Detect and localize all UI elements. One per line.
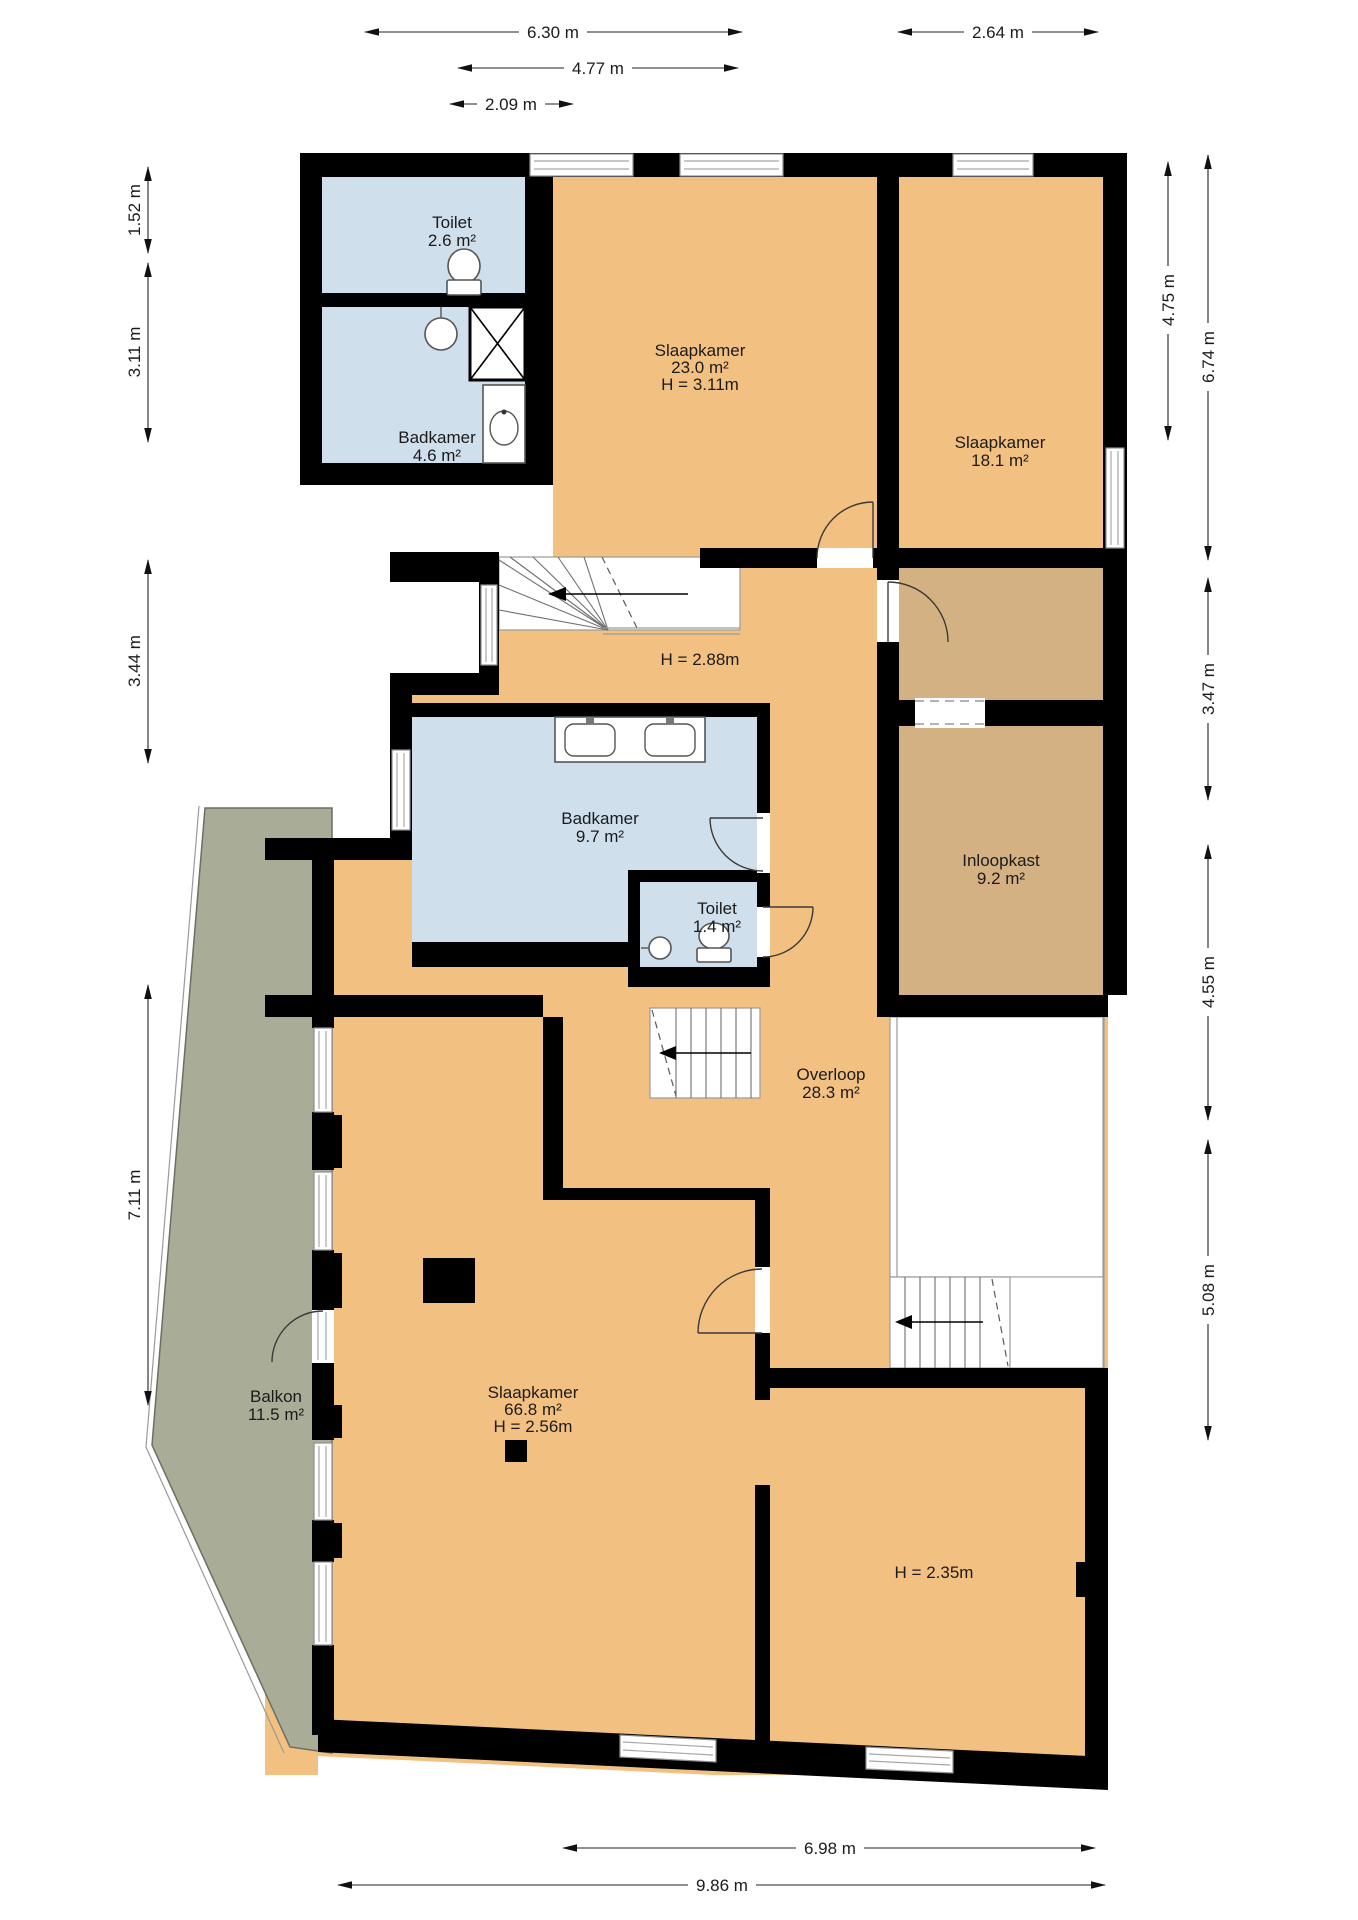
wall-toilet-badkamer — [322, 293, 525, 307]
wall-overloop-bottom — [755, 1368, 1108, 1388]
window-icon — [680, 154, 783, 176]
wall-668-right-upper — [543, 1017, 563, 1190]
room-fill-strip — [334, 860, 414, 1000]
room-label-area: 2.6 m² — [428, 231, 477, 250]
wall-corridor-left-b — [757, 873, 770, 907]
room-label-name: Badkamer — [561, 809, 639, 828]
wall-pier-4 — [312, 1523, 342, 1558]
dim-label: 4.75 m — [1159, 274, 1178, 326]
wall-18-bottom — [899, 548, 1103, 568]
shaft-icon — [470, 307, 525, 380]
wall-corridor-left-a — [757, 703, 770, 813]
dim-label: 3.47 m — [1199, 663, 1218, 715]
wall-wetrooms-bottom — [300, 463, 553, 485]
dim-label: 1.52 m — [125, 184, 144, 236]
wall-668-left-1 — [312, 860, 334, 1028]
wall-stub — [755, 1388, 770, 1400]
window-icon — [392, 750, 410, 830]
dim-label: 6.30 m — [527, 23, 579, 42]
wall-pier-3 — [312, 1405, 342, 1438]
wall-toilet14-bottom — [628, 967, 770, 987]
room-label-name: Slaapkamer — [955, 433, 1046, 452]
staircase-top-icon — [499, 557, 740, 634]
wall-closet-b — [985, 700, 1103, 726]
room-label-area: 28.3 m² — [802, 1083, 860, 1102]
window-icon — [530, 154, 633, 176]
window-icon — [314, 1028, 332, 1112]
column-small-icon — [505, 1440, 527, 1462]
void-area — [890, 1017, 1103, 1277]
wall-pier-right — [1076, 1562, 1108, 1597]
window-icon — [953, 154, 1033, 176]
room-label-height: H = 2.56m — [494, 1417, 573, 1436]
wall-overloop-left-a — [755, 1200, 770, 1267]
window-icon — [314, 1172, 332, 1250]
room-label-name: Toilet — [432, 213, 472, 232]
wall-668-lowroom — [755, 1485, 770, 1748]
room-toilet-top — [322, 177, 525, 293]
dim-label: 7.11 m — [125, 1170, 144, 1221]
window-icon — [620, 1735, 716, 1762]
wall-mid-jog — [390, 673, 499, 695]
wall-toilet14-top — [628, 870, 757, 882]
room-label-area: 1.4 m² — [693, 917, 742, 936]
staircase-middle-icon — [650, 1008, 760, 1098]
wall-toilet14-left — [628, 882, 640, 967]
wall-pier-2 — [312, 1253, 342, 1308]
wall-wetrooms-right — [525, 177, 553, 463]
dim-label: 3.44 m — [125, 635, 144, 687]
dim-label: 5.08 m — [1199, 1264, 1218, 1316]
dim-label: 9.86 m — [696, 1876, 748, 1895]
window-icon — [866, 1747, 953, 1773]
staircase-bottom-icon — [890, 1277, 1010, 1368]
room-label-name: Balkon — [250, 1387, 302, 1406]
dim-label: 2.64 m — [972, 23, 1024, 42]
toilet-icon — [447, 249, 481, 295]
window-icon — [314, 1562, 332, 1645]
wall-pier-1 — [312, 1115, 342, 1168]
wall-balcony-top — [265, 838, 412, 860]
wall-inloopkast-bottom — [880, 995, 1108, 1017]
dim-label: 3.11 m — [125, 327, 144, 378]
wall-left-top-block — [300, 177, 322, 485]
room-label-height: H = 2.88m — [661, 650, 740, 669]
wall-668-top — [265, 995, 543, 1017]
room-label-name: Overloop — [797, 1065, 866, 1084]
wall-stair-left — [390, 552, 499, 582]
wall-23-bottom-a — [700, 548, 817, 568]
room-label-area: 18.1 m² — [971, 451, 1029, 470]
dim-label: 4.77 m — [572, 59, 624, 78]
room-label-area: 9.2 m² — [977, 869, 1026, 888]
wall-closet-a — [899, 700, 915, 726]
wall-bedroom-separator — [877, 177, 899, 580]
dim-label: 6.74 m — [1199, 331, 1218, 383]
room-label-area: 9.7 m² — [576, 827, 625, 846]
double-sink-icon — [555, 717, 705, 762]
room-label-area: 4.6 m² — [413, 446, 462, 465]
column-icon — [423, 1258, 475, 1303]
floorplan-page: Toilet 2.6 m² Badkamer 4.6 m² Slaapkamer… — [0, 0, 1358, 1920]
dim-label: 2.09 m — [485, 95, 537, 114]
void-area-2 — [1010, 1277, 1103, 1368]
wall-badkamer97-bottom — [412, 942, 628, 967]
dim-label: 4.55 m — [1199, 956, 1218, 1008]
wall-23-bottom-b — [873, 548, 899, 568]
window-icon — [481, 585, 497, 665]
sink-icon — [483, 385, 525, 463]
floorplan-canvas: Toilet 2.6 m² Badkamer 4.6 m² Slaapkamer… — [0, 0, 1358, 1920]
wall-right-top — [1103, 153, 1127, 995]
room-closet-upper — [899, 568, 1103, 700]
window-icon — [1106, 448, 1124, 548]
window-icon — [314, 1443, 332, 1520]
room-label-name: Inloopkast — [962, 851, 1040, 870]
room-label-height: H = 3.11m — [661, 375, 739, 394]
room-label-area: 11.5 m² — [248, 1405, 305, 1424]
room-label-name: Toilet — [697, 899, 737, 918]
wall-badkamer97-top — [412, 703, 757, 717]
dim-label: 6.98 m — [804, 1839, 856, 1858]
wall-corridor-right — [877, 642, 899, 1017]
room-label-name: Badkamer — [398, 428, 476, 447]
room-label-height: H = 2.35m — [895, 1563, 974, 1582]
wall-668-mid — [543, 1188, 770, 1200]
